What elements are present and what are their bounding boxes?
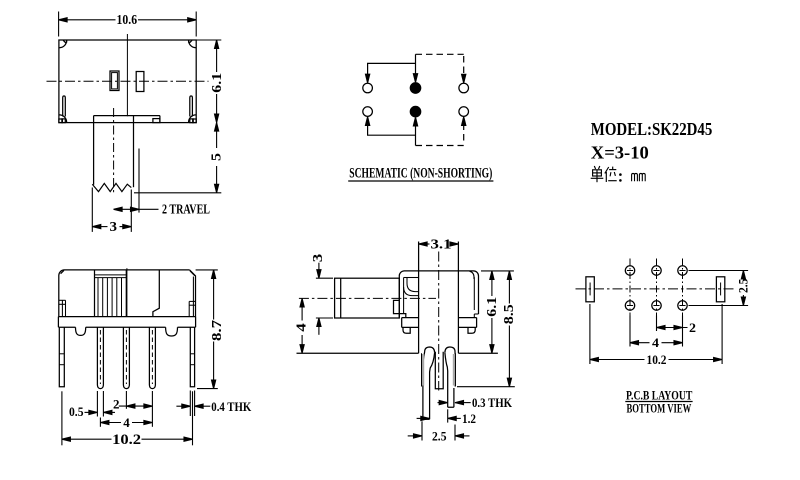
svg-text:4: 4: [652, 336, 660, 350]
svg-text:0.4 THK: 0.4 THK: [211, 400, 251, 414]
svg-text:BOTTOM VIEW: BOTTOM VIEW: [627, 401, 692, 415]
svg-text:2: 2: [689, 321, 696, 335]
svg-text:MODEL:SK22D45: MODEL:SK22D45: [591, 119, 713, 139]
svg-text:3.1: 3.1: [431, 237, 452, 252]
svg-text:8.7: 8.7: [209, 320, 224, 341]
svg-text:4: 4: [123, 416, 130, 430]
svg-text:2 TRAVEL: 2 TRAVEL: [162, 202, 210, 217]
svg-text:3: 3: [310, 253, 325, 262]
svg-text:10.2: 10.2: [112, 432, 141, 448]
svg-text:6.1: 6.1: [484, 297, 499, 317]
svg-text:0.3 THK: 0.3 THK: [472, 396, 512, 410]
svg-text:5: 5: [209, 153, 224, 161]
svg-text:10.2: 10.2: [647, 352, 667, 367]
svg-text:SCHEMATIC (NON-SHORTING): SCHEMATIC (NON-SHORTING): [349, 166, 492, 182]
svg-text:4: 4: [293, 323, 308, 332]
svg-text:2.5: 2.5: [737, 279, 751, 294]
svg-text:0.5: 0.5: [69, 405, 84, 419]
svg-text:6.1: 6.1: [209, 73, 224, 93]
svg-text:3: 3: [110, 219, 118, 234]
svg-text:2: 2: [113, 398, 120, 412]
svg-text:8.5: 8.5: [501, 304, 516, 324]
svg-text:1.2: 1.2: [462, 412, 476, 426]
svg-text:2.5: 2.5: [432, 429, 447, 443]
svg-text:X=3-10: X=3-10: [591, 142, 649, 162]
svg-text:10.6: 10.6: [117, 12, 138, 27]
